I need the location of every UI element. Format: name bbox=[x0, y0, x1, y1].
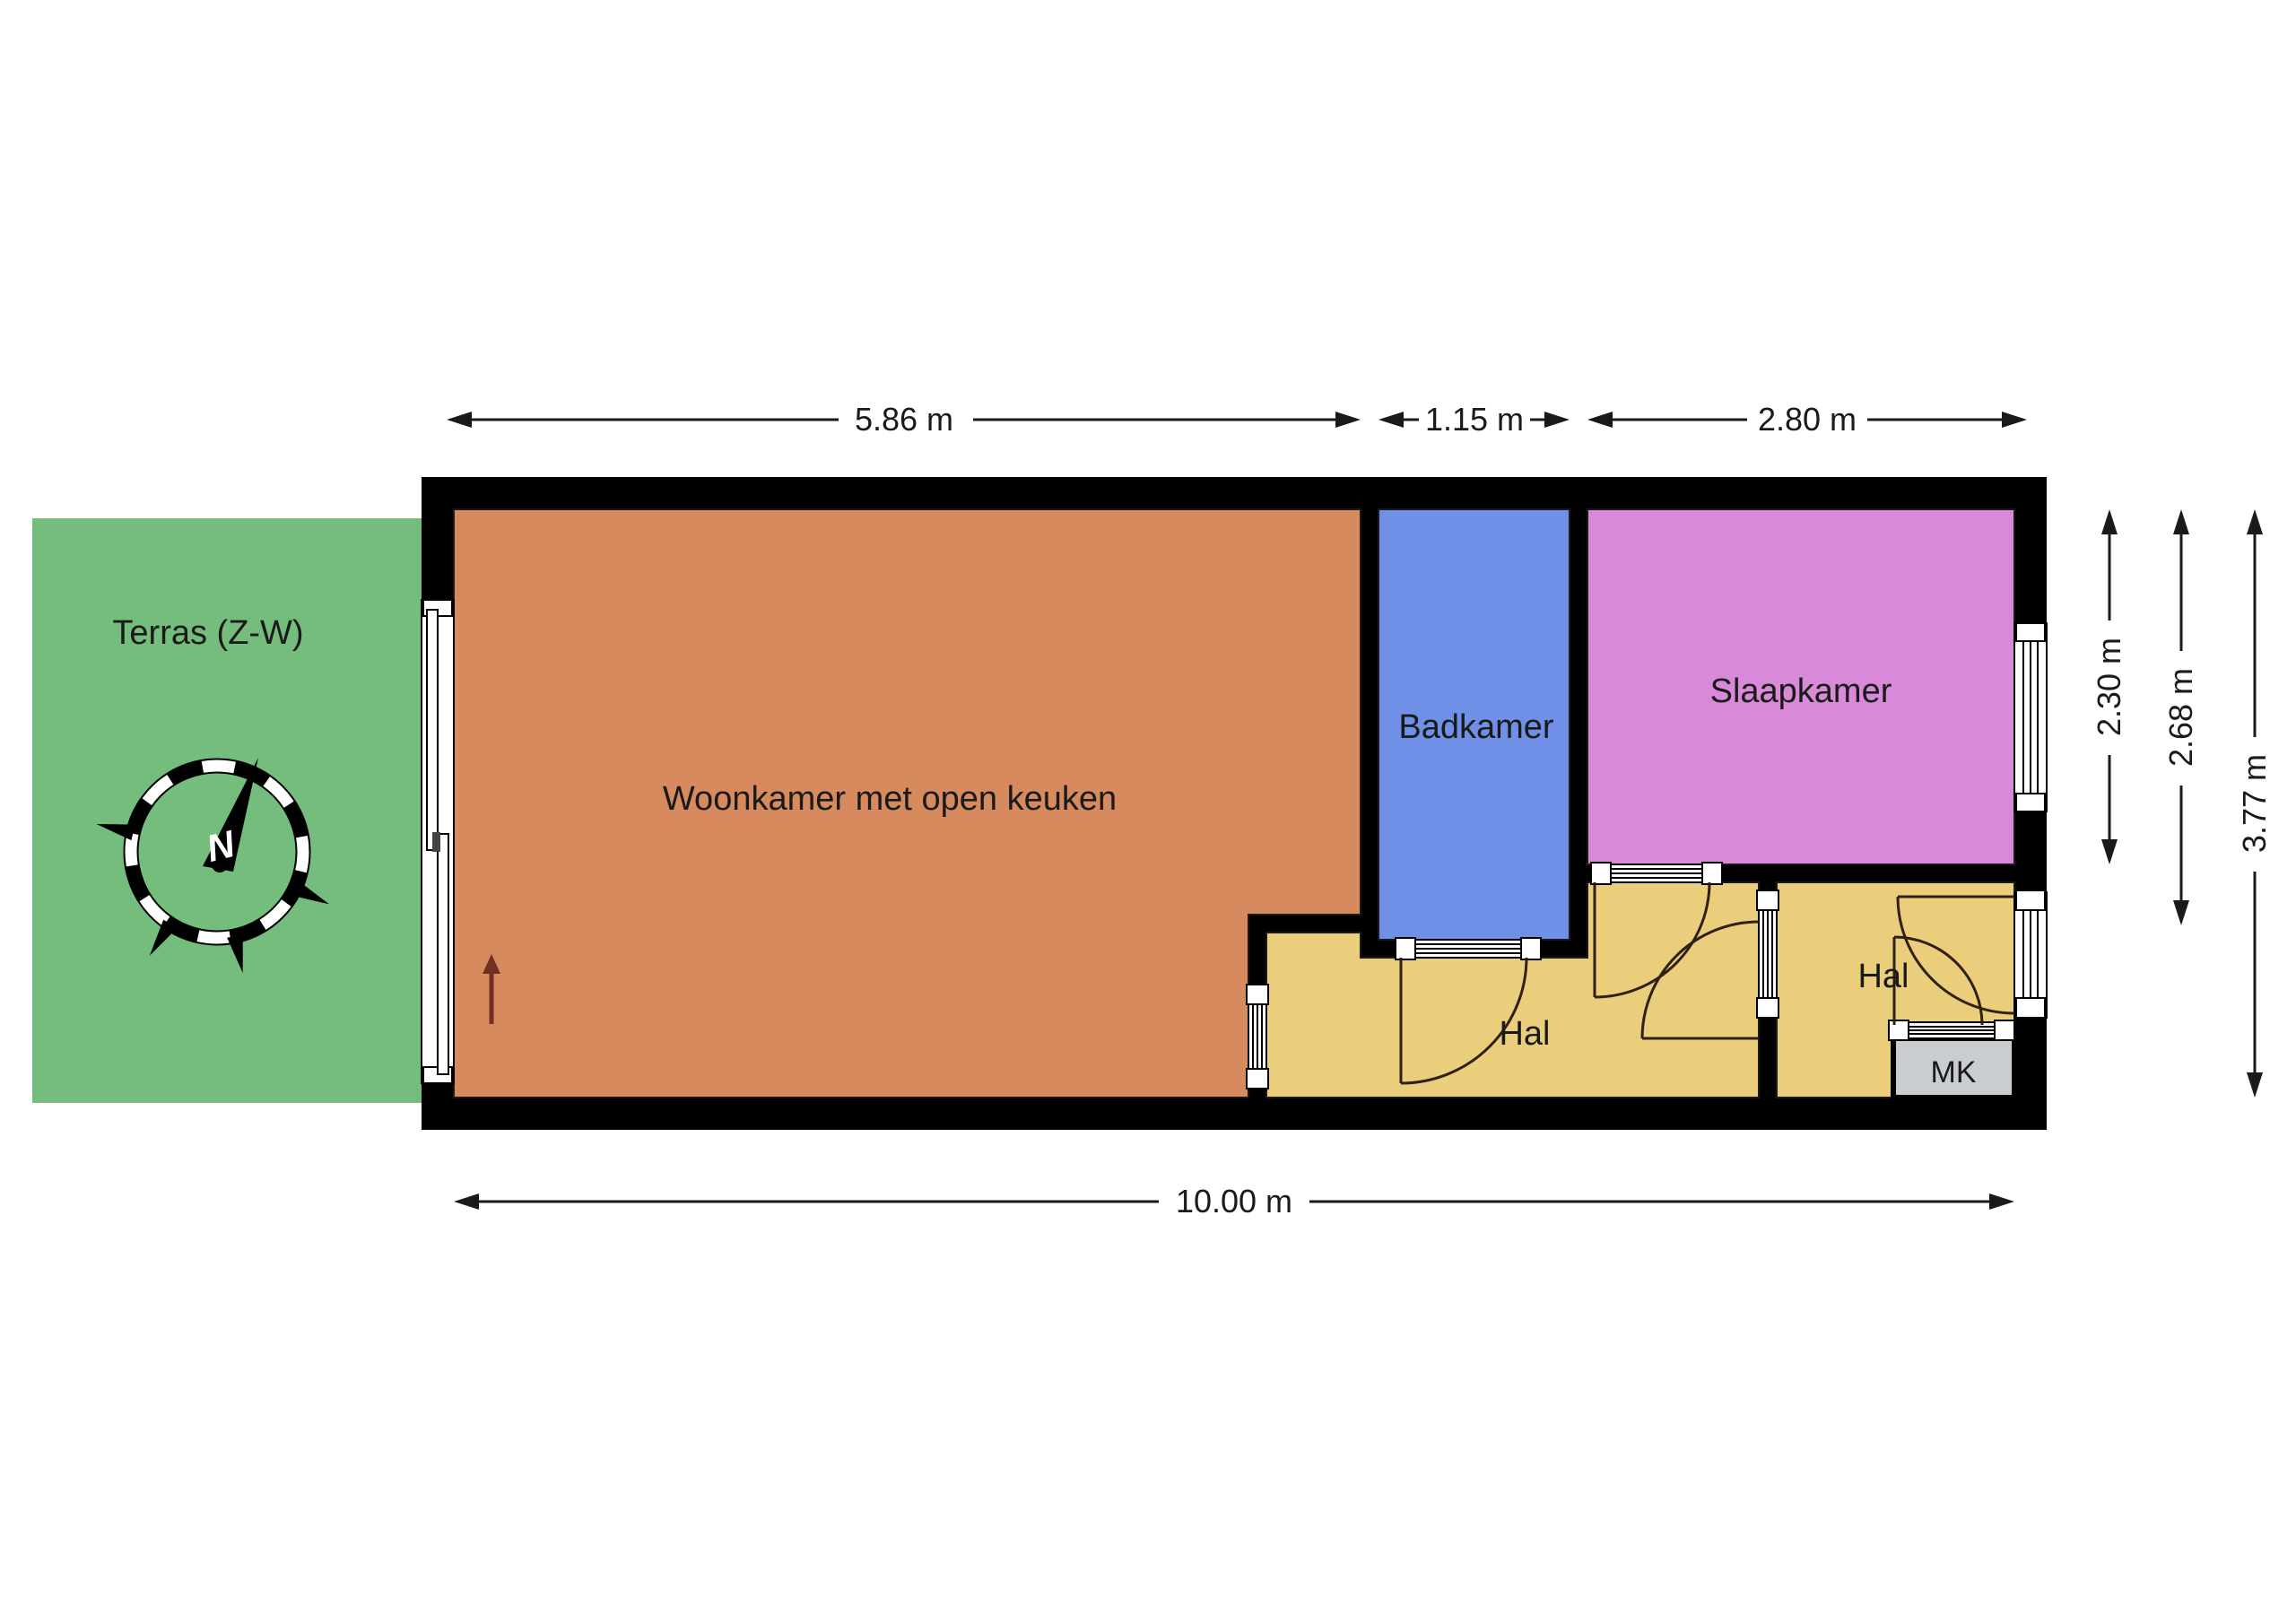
floorplan-canvas: Terras (Z-W) N bbox=[0, 0, 2296, 1623]
window-terrace-door bbox=[422, 600, 454, 1083]
label-mk: MK bbox=[1931, 1055, 1977, 1089]
door-sill-woonkamer-hal bbox=[1247, 985, 1268, 1090]
dimension-right-3: 3.77 m bbox=[2236, 509, 2273, 1098]
svg-text:2.30 m: 2.30 m bbox=[2091, 638, 2127, 736]
door-handle bbox=[432, 832, 440, 852]
door-sill-mk bbox=[1889, 1020, 2014, 1040]
dimension-right-2: 2.68 m bbox=[2162, 509, 2199, 925]
svg-text:3.77 m: 3.77 m bbox=[2236, 754, 2273, 853]
svg-text:2.80 m: 2.80 m bbox=[1758, 401, 1857, 438]
label-hal-1: Hal bbox=[1499, 1015, 1550, 1053]
svg-text:2.68 m: 2.68 m bbox=[2162, 668, 2199, 767]
dimension-right-1: 2.30 m bbox=[2091, 509, 2127, 864]
floorplan-page: Terras (Z-W) N bbox=[0, 0, 2296, 1623]
label-hal-2: Hal bbox=[1857, 958, 1909, 995]
terrace-label: Terras (Z-W) bbox=[112, 614, 303, 652]
label-slaapkamer: Slaapkamer bbox=[1710, 673, 1892, 710]
front-door-opening bbox=[2014, 890, 2047, 1018]
door-sill-hal bbox=[1757, 890, 1779, 1018]
dimension-top-3: 2.80 m bbox=[1587, 401, 2027, 438]
svg-text:5.86 m: 5.86 m bbox=[855, 401, 953, 438]
terrace-area bbox=[32, 518, 422, 1103]
dimension-bottom: 10.00 m bbox=[454, 1183, 2014, 1219]
window-slaapkamer bbox=[2014, 623, 2047, 811]
svg-text:1.15 m: 1.15 m bbox=[1425, 401, 1524, 438]
door-sill-badkamer bbox=[1396, 938, 1541, 959]
svg-text:10.00 m: 10.00 m bbox=[1176, 1183, 1292, 1219]
dimension-top-2: 1.15 m bbox=[1378, 401, 1570, 438]
label-woonkamer: Woonkamer met open keuken bbox=[663, 780, 1117, 818]
dimension-top-1: 5.86 m bbox=[447, 401, 1361, 438]
label-badkamer: Badkamer bbox=[1398, 708, 1554, 746]
door-sill-slaapkamer bbox=[1591, 863, 1722, 884]
